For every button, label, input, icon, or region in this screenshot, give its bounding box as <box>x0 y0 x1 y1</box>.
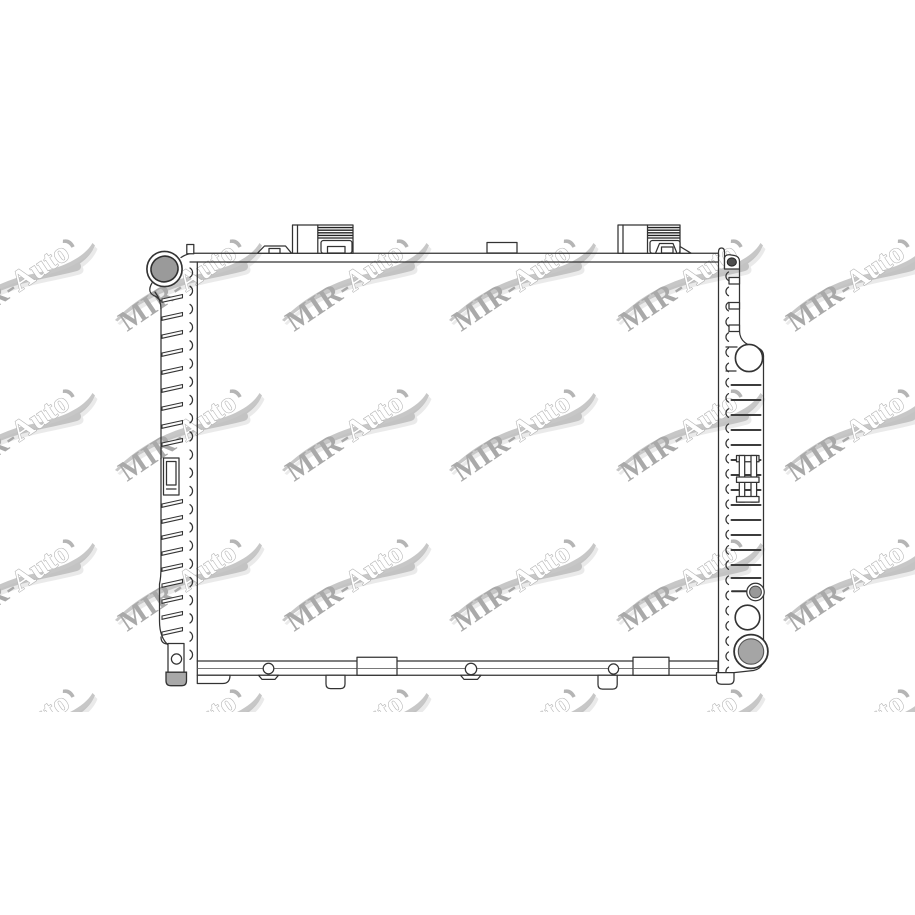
fin <box>162 612 183 620</box>
seam-dash <box>726 576 729 585</box>
seam-dash <box>726 333 729 342</box>
seam-dash <box>726 546 729 555</box>
bar-hole-2 <box>465 663 476 674</box>
bracket-wedge <box>680 247 691 254</box>
seam-dash <box>190 377 193 386</box>
filler-neck <box>147 251 182 301</box>
left-tank-seam-dashes <box>190 268 193 659</box>
seam-dash <box>726 454 729 463</box>
fin <box>162 439 183 447</box>
seam-dash <box>190 450 193 459</box>
right-tank-seam-dashes <box>726 272 729 676</box>
fin <box>162 349 183 357</box>
seam-dash <box>190 286 193 295</box>
fin <box>162 331 183 339</box>
product-image-canvas: MIR-AutoMIR-AutoMIR-AutoMIR-AutoMIR-Auto… <box>0 0 915 915</box>
fin <box>162 421 183 429</box>
top-mounting-bracket-left <box>293 225 354 253</box>
mounting-foot-right <box>717 673 735 685</box>
seam-dash <box>190 395 193 404</box>
left-bottom-bracket <box>161 637 187 686</box>
bottom-support-bar <box>197 657 718 689</box>
clip-pin <box>727 258 736 266</box>
fin <box>162 532 183 540</box>
seam-dash <box>190 359 193 368</box>
seam-dash <box>726 591 729 600</box>
radiator-drawing <box>0 0 915 915</box>
right-fin-small-3 <box>729 325 740 332</box>
bar-notch-1 <box>259 675 279 679</box>
top-clip-left <box>258 246 292 253</box>
seam-dash <box>726 348 729 357</box>
seam-dash <box>726 500 729 509</box>
bar-raised-mount-left <box>357 657 397 675</box>
seam-dash <box>726 439 729 448</box>
seam-dash <box>726 515 729 524</box>
seam-dash <box>726 622 729 631</box>
radiator <box>147 225 768 689</box>
right-tank <box>717 248 768 684</box>
middle-port <box>735 605 760 630</box>
fin <box>162 516 183 524</box>
seam-dash <box>190 268 193 277</box>
seam-dash <box>190 614 193 623</box>
seam-dash <box>726 470 729 479</box>
fin <box>162 367 183 375</box>
right-top-clip <box>725 255 740 269</box>
seam-dash <box>190 468 193 477</box>
seam-dash <box>726 272 729 281</box>
fin <box>162 295 183 303</box>
seam-dash <box>190 414 193 423</box>
small-port-assembly <box>732 583 764 600</box>
right-fin-small-1 <box>729 278 740 285</box>
left-tank <box>155 262 197 686</box>
fin <box>162 385 183 393</box>
seam-dash <box>190 505 193 514</box>
bar-raised-mount-right <box>633 657 669 675</box>
small-port <box>750 586 762 598</box>
fin <box>162 596 183 604</box>
seam-dash <box>726 606 729 615</box>
fin <box>162 628 183 636</box>
seam-dash <box>726 409 729 418</box>
seam-dash <box>190 577 193 586</box>
seam-dash <box>726 561 729 570</box>
top-mounting-bracket-right <box>618 225 691 253</box>
bar-hole-1 <box>263 663 274 674</box>
upper-port <box>735 344 762 371</box>
seam-dash <box>726 394 729 403</box>
seam-dash <box>190 486 193 495</box>
fin <box>162 548 183 556</box>
seam-dash <box>190 596 193 605</box>
large-port-assembly <box>734 635 768 669</box>
seam-dash <box>190 323 193 332</box>
seam-dash <box>726 424 729 433</box>
fin <box>162 580 183 588</box>
top-center-tab <box>487 243 517 254</box>
right-fin-small-2 <box>729 303 740 310</box>
seam-dash <box>726 378 729 387</box>
bar-hole-3 <box>608 664 618 674</box>
seam-dash <box>190 341 193 350</box>
fin <box>162 564 183 572</box>
seam-dash <box>190 523 193 532</box>
fin <box>162 313 183 321</box>
seam-dash <box>190 432 193 441</box>
seam-dash <box>190 541 193 550</box>
bar-end-lip <box>197 675 230 683</box>
drain-plug <box>164 458 180 495</box>
bracket-hole <box>171 654 181 664</box>
mounting-foot-left <box>166 672 187 686</box>
seam-dash <box>190 632 193 641</box>
fin <box>162 403 183 411</box>
top-left-tab <box>187 245 194 254</box>
seam-dash <box>726 530 729 539</box>
seam-dash <box>726 287 729 296</box>
side-mounting-bracket <box>737 456 760 503</box>
seam-dash <box>726 485 729 494</box>
mounting-tab-1 <box>326 675 345 688</box>
core-right-edge <box>719 248 725 672</box>
fin <box>162 500 183 508</box>
seam-dash <box>190 304 193 313</box>
seam-dash <box>190 650 193 659</box>
large-port <box>738 639 763 664</box>
seam-dash <box>726 302 729 311</box>
bar-notch-2 <box>461 675 482 679</box>
seam-dash <box>726 318 729 327</box>
mounting-tab-2 <box>598 675 617 689</box>
seam-dash <box>726 652 729 661</box>
seam-dash <box>726 637 729 646</box>
seam-dash <box>190 559 193 568</box>
